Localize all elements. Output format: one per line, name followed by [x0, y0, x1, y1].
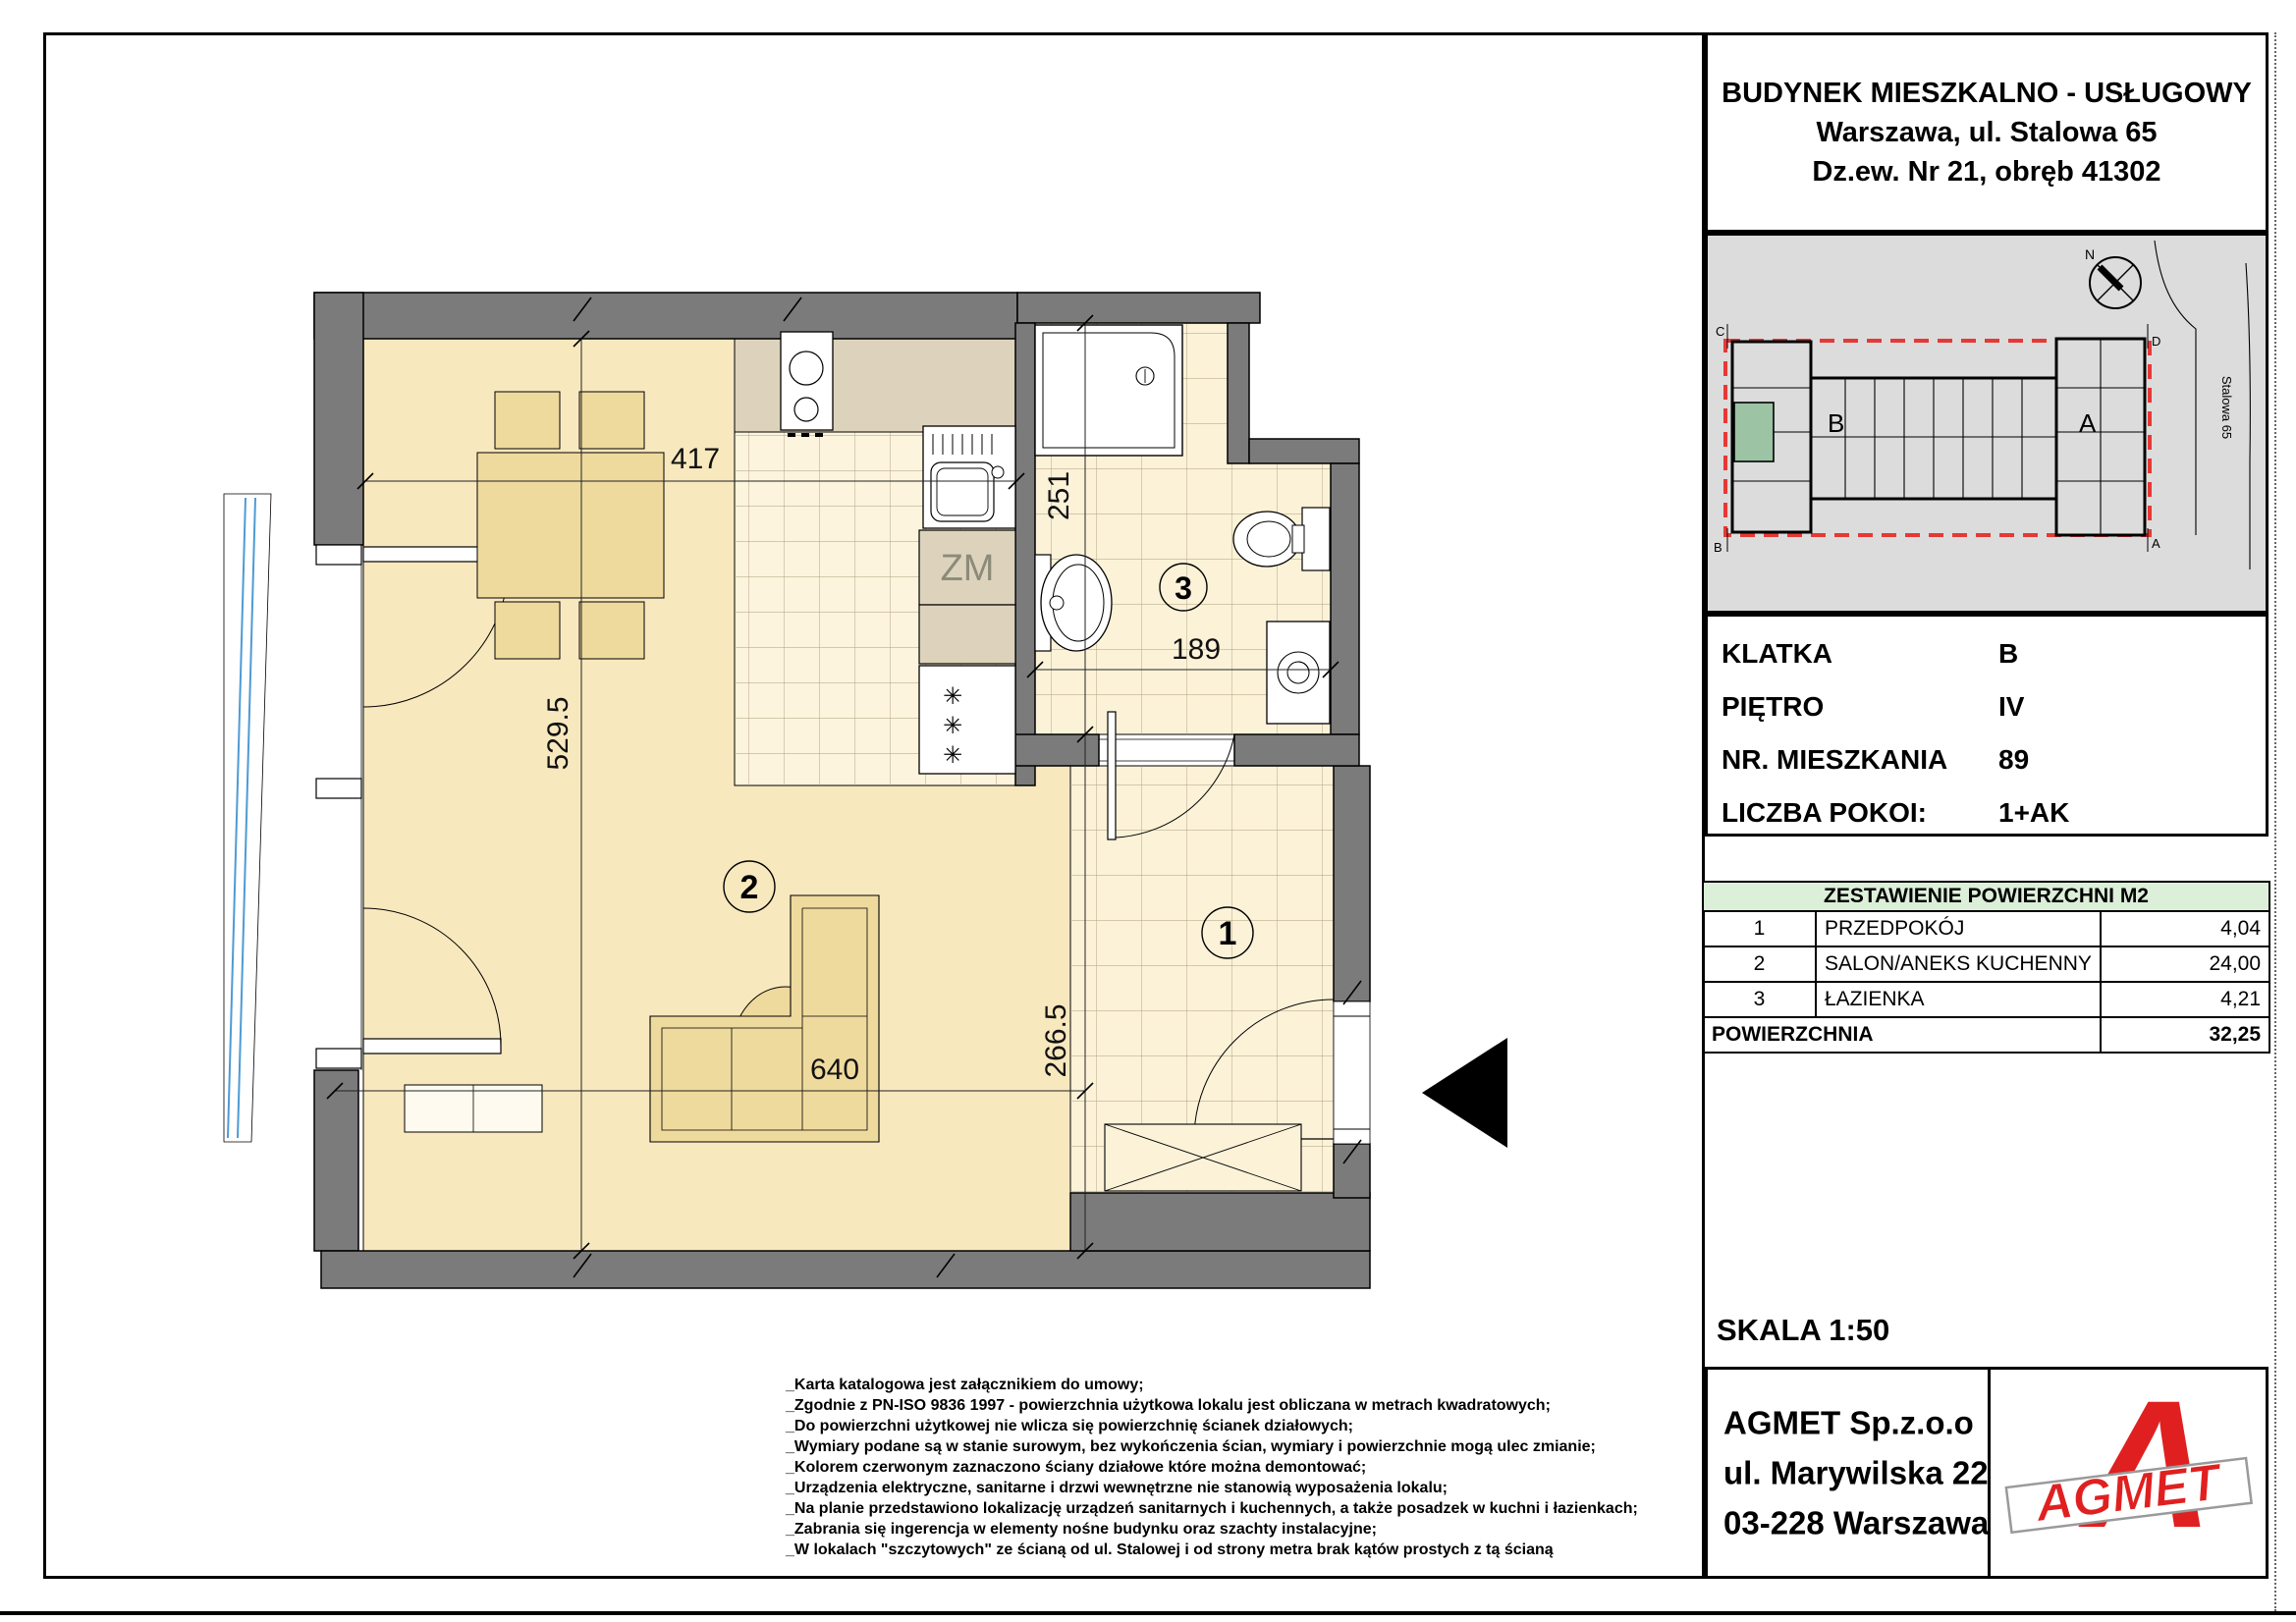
- footnote-line: _Zgodnie z PN-ISO 9836 1997 - powierzchn…: [786, 1395, 1638, 1416]
- svg-text:✳: ✳: [943, 742, 962, 769]
- room2-number: 2: [740, 869, 759, 906]
- dim-bath-h-label: 189: [1172, 633, 1221, 666]
- street-label: Stalowa 65: [2219, 376, 2234, 439]
- dim-sofa-label: 640: [810, 1054, 859, 1086]
- info-row-pietro: PIĘTRO IV: [1722, 691, 1824, 723]
- pietro-value: IV: [1998, 691, 2024, 723]
- kitchen-cabinet: [919, 605, 1015, 664]
- company-name: AGMET Sp.z.o.o: [1723, 1398, 1989, 1448]
- table-row: 2 SALON/ANEKS KUCHENNY 24,00: [1703, 946, 2269, 982]
- footnote-line: _W lokalach "szczytowych" ze ścianą od u…: [786, 1540, 1638, 1560]
- washing-machine-icon: [1267, 622, 1330, 724]
- agmet-logo: A AGMET: [1991, 1370, 2268, 1576]
- page-edge-dotted-line: [2274, 32, 2276, 1611]
- area-table-title: ZESTAWIENIE POWIERZCHNI M2: [1703, 882, 2269, 911]
- site-plan-box: B A C D B A N Stalowa 65: [1705, 233, 2269, 614]
- site-corner-b: B: [1714, 540, 1722, 555]
- table-row: 3 ŁAZIENKA 4,21: [1703, 982, 2269, 1017]
- pokoje-value: 1+AK: [1998, 797, 2069, 829]
- total-value: 32,25: [2101, 1017, 2269, 1053]
- site-corner-c: C: [1716, 324, 1724, 339]
- site-corner-d: D: [2152, 334, 2160, 349]
- room1-number: 1: [1219, 915, 1237, 952]
- dim-top-label: 417: [671, 443, 720, 475]
- company-logo-cell: A AGMET: [1991, 1370, 2268, 1576]
- area-table: ZESTAWIENIE POWIERZCHNI M2 1 PRZEDPOKÓJ …: [1702, 881, 2270, 1054]
- company-address-cell: AGMET Sp.z.o.o ul. Marywilska 22 03-228 …: [1708, 1370, 1991, 1576]
- dishwasher: ZM: [919, 530, 1015, 605]
- building-title: BUDYNEK MIESZKALNO - USŁUGOWY: [1722, 74, 2252, 113]
- company-box: AGMET Sp.z.o.o ul. Marywilska 22 03-228 …: [1705, 1367, 2269, 1579]
- pokoje-label: LICZBA POKOI:: [1722, 797, 1927, 828]
- row-value: 4,21: [2101, 982, 2269, 1017]
- entrance-arrow-icon: [1422, 1038, 1507, 1148]
- klatka-label: KLATKA: [1722, 638, 1832, 669]
- kitchen-sink-icon: [923, 426, 1015, 528]
- stove-icon: [781, 332, 833, 437]
- title-block: BUDYNEK MIESZKALNO - USŁUGOWY Warszawa, …: [1705, 32, 2269, 233]
- dim-bath-v-label: 251: [1043, 471, 1075, 520]
- dishwasher-label: ZM: [941, 548, 995, 589]
- room3-number: 3: [1175, 570, 1192, 606]
- compass-icon: N: [2085, 246, 2141, 308]
- tv-stand: [405, 1085, 542, 1132]
- row-name: SALON/ANEKS KUCHENNY: [1816, 946, 2101, 982]
- site-corner-a: A: [2152, 536, 2160, 551]
- footnote-line: _Na planie przedstawiono lokalizację urz…: [786, 1498, 1638, 1519]
- fridge-icon: ✳ ✳ ✳: [919, 666, 1015, 774]
- street-lines: [2155, 241, 2250, 569]
- footnote-line: _Urządzenia elektryczne, sanitarne i drz…: [786, 1478, 1638, 1498]
- wardrobe: [1105, 1124, 1301, 1191]
- balcony-glazing: [224, 494, 361, 1142]
- footnote-line: _Kolorem czerwonym zaznaczono ściany dzi…: [786, 1457, 1638, 1478]
- footnote-line: _Karta katalogowa jest załącznikiem do u…: [786, 1375, 1638, 1395]
- footnote-line: _Zabrania się ingerencja w elementy nośn…: [786, 1519, 1638, 1540]
- row-value: 24,00: [2101, 946, 2269, 982]
- row-value: 4,04: [2101, 911, 2269, 946]
- shower-icon: [1035, 325, 1182, 456]
- company-city: 03-228 Warszawa: [1723, 1498, 1989, 1548]
- total-label: POWIERZCHNIA: [1703, 1017, 2101, 1053]
- info-row-pokoje: LICZBA POKOI: 1+AK: [1722, 797, 1927, 829]
- nr-value: 89: [1998, 744, 2029, 776]
- row-num: 2: [1703, 946, 1816, 982]
- company-street: ul. Marywilska 22: [1723, 1448, 1989, 1498]
- site-plan-drawing: B A C D B A N Stalowa 65: [1708, 236, 2266, 611]
- row-num: 3: [1703, 982, 1816, 1017]
- kitchen-counter: [735, 339, 1017, 432]
- row-name: PRZEDPOKÓJ: [1816, 911, 2101, 946]
- footnote-line: _Wymiary podane są w stanie surowym, bez…: [786, 1436, 1638, 1457]
- site-stairwell-b: B: [1828, 408, 1844, 438]
- svg-text:✳: ✳: [943, 713, 962, 739]
- row-name: ŁAZIENKA: [1816, 982, 2101, 1017]
- footnotes: _Karta katalogowa jest załącznikiem do u…: [786, 1375, 1638, 1560]
- building-address: Warszawa, ul. Stalowa 65: [1816, 113, 2157, 152]
- svg-text:✳: ✳: [943, 683, 962, 710]
- balcony-door-jambs: [316, 545, 361, 1068]
- pietro-label: PIĘTRO: [1722, 691, 1824, 722]
- site-highlighted-unit: [1734, 403, 1774, 461]
- scale-label: SKALA 1:50: [1717, 1313, 1889, 1348]
- bathroom-sink-icon: [1035, 555, 1112, 651]
- row-num: 1: [1703, 911, 1816, 946]
- dim-left-label: 529.5: [542, 696, 574, 770]
- page-bottom-rule: [0, 1611, 2296, 1615]
- catalog-card-page: { "header": { "line1": "BUDYNEK MIESZKAL…: [0, 0, 2296, 1622]
- footnote-line: _Do powierzchni użytkowej nie wlicza się…: [786, 1416, 1638, 1436]
- compass-n-label: N: [2085, 246, 2095, 262]
- floor-plan-drawing: ZM ✳ ✳ ✳: [147, 152, 1571, 1291]
- table-row: 1 PRZEDPOKÓJ 4,04: [1703, 911, 2269, 946]
- info-row-nr: NR. MIESZKANIA 89: [1722, 744, 1947, 776]
- site-stairwell-a: A: [2079, 408, 2097, 438]
- nr-label: NR. MIESZKANIA: [1722, 744, 1947, 775]
- dim-hall-v-label: 266.5: [1040, 1003, 1072, 1077]
- info-row-klatka: KLATKA B: [1722, 638, 1832, 670]
- building-plot: Dz.ew. Nr 21, obręb 41302: [1812, 152, 2160, 191]
- toilet-icon: [1233, 508, 1330, 570]
- unit-info-box: KLATKA B PIĘTRO IV NR. MIESZKANIA 89 LIC…: [1705, 614, 2269, 837]
- total-row: POWIERZCHNIA 32,25: [1703, 1017, 2269, 1053]
- klatka-value: B: [1998, 638, 2018, 670]
